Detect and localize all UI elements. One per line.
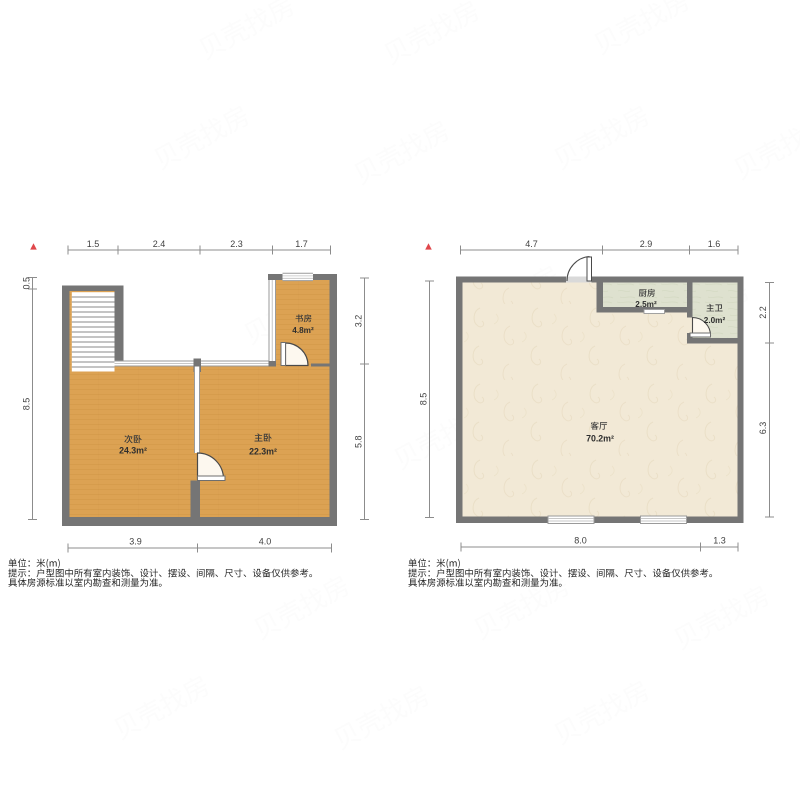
svg-text:4.8m²: 4.8m² — [292, 326, 314, 335]
svg-text:24.3m²: 24.3m² — [119, 446, 147, 456]
svg-text:1.5: 1.5 — [87, 239, 100, 249]
svg-text:2.2: 2.2 — [758, 306, 768, 319]
svg-text:22.3m²: 22.3m² — [249, 447, 277, 457]
svg-text:2.4: 2.4 — [153, 239, 166, 249]
svg-text:2.0m²: 2.0m² — [704, 316, 726, 325]
svg-text:2.5m²: 2.5m² — [635, 300, 657, 309]
svg-text:1.3: 1.3 — [713, 536, 726, 546]
svg-text:8.0: 8.0 — [574, 536, 587, 546]
svg-text:5.8: 5.8 — [354, 436, 364, 449]
svg-text:0.5: 0.5 — [22, 277, 32, 290]
svg-text:70.2m²: 70.2m² — [586, 434, 614, 444]
svg-text:1.6: 1.6 — [708, 239, 721, 249]
svg-text:4.7: 4.7 — [525, 239, 538, 249]
svg-text:8.5: 8.5 — [22, 398, 32, 411]
svg-text:3.2: 3.2 — [354, 315, 364, 328]
svg-text:2.9: 2.9 — [640, 239, 653, 249]
svg-text:6.3: 6.3 — [758, 422, 768, 435]
svg-text:1.7: 1.7 — [295, 239, 308, 249]
svg-text:2.3: 2.3 — [230, 239, 243, 249]
svg-text:4.0: 4.0 — [259, 537, 272, 547]
svg-text:8.5: 8.5 — [419, 393, 429, 406]
svg-text:3.9: 3.9 — [129, 537, 142, 547]
